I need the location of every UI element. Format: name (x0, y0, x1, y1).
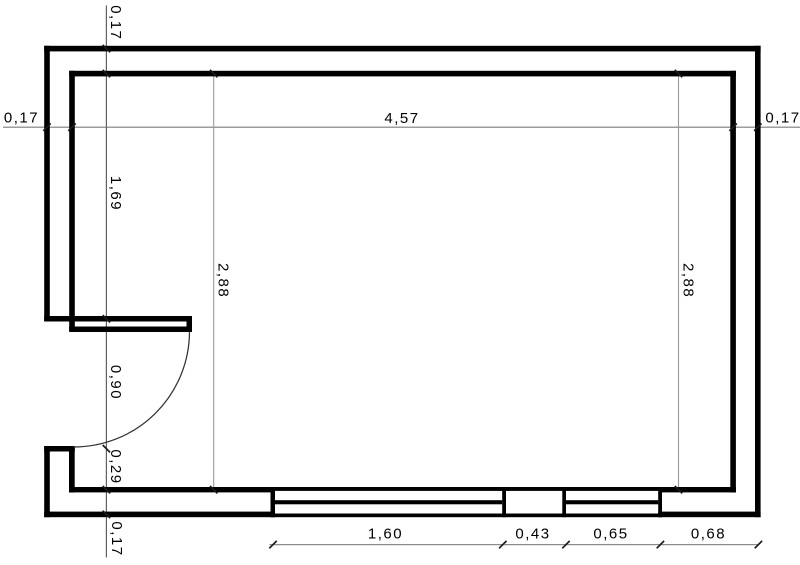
svg-text:0,17: 0,17 (4, 109, 39, 126)
svg-text:1,60: 1,60 (368, 526, 403, 543)
svg-text:2,88: 2,88 (680, 263, 697, 298)
svg-text:0,17: 0,17 (107, 5, 124, 40)
svg-text:0,65: 0,65 (593, 526, 628, 543)
svg-text:0,17: 0,17 (108, 521, 125, 556)
svg-text:0,17: 0,17 (765, 109, 800, 126)
svg-text:2,88: 2,88 (215, 263, 232, 298)
svg-text:0,68: 0,68 (691, 526, 726, 543)
svg-text:0,43: 0,43 (515, 526, 550, 543)
svg-text:0,90: 0,90 (107, 365, 124, 400)
svg-text:0,29: 0,29 (107, 449, 124, 484)
svg-text:4,57: 4,57 (384, 110, 419, 127)
svg-text:1,69: 1,69 (107, 176, 124, 211)
